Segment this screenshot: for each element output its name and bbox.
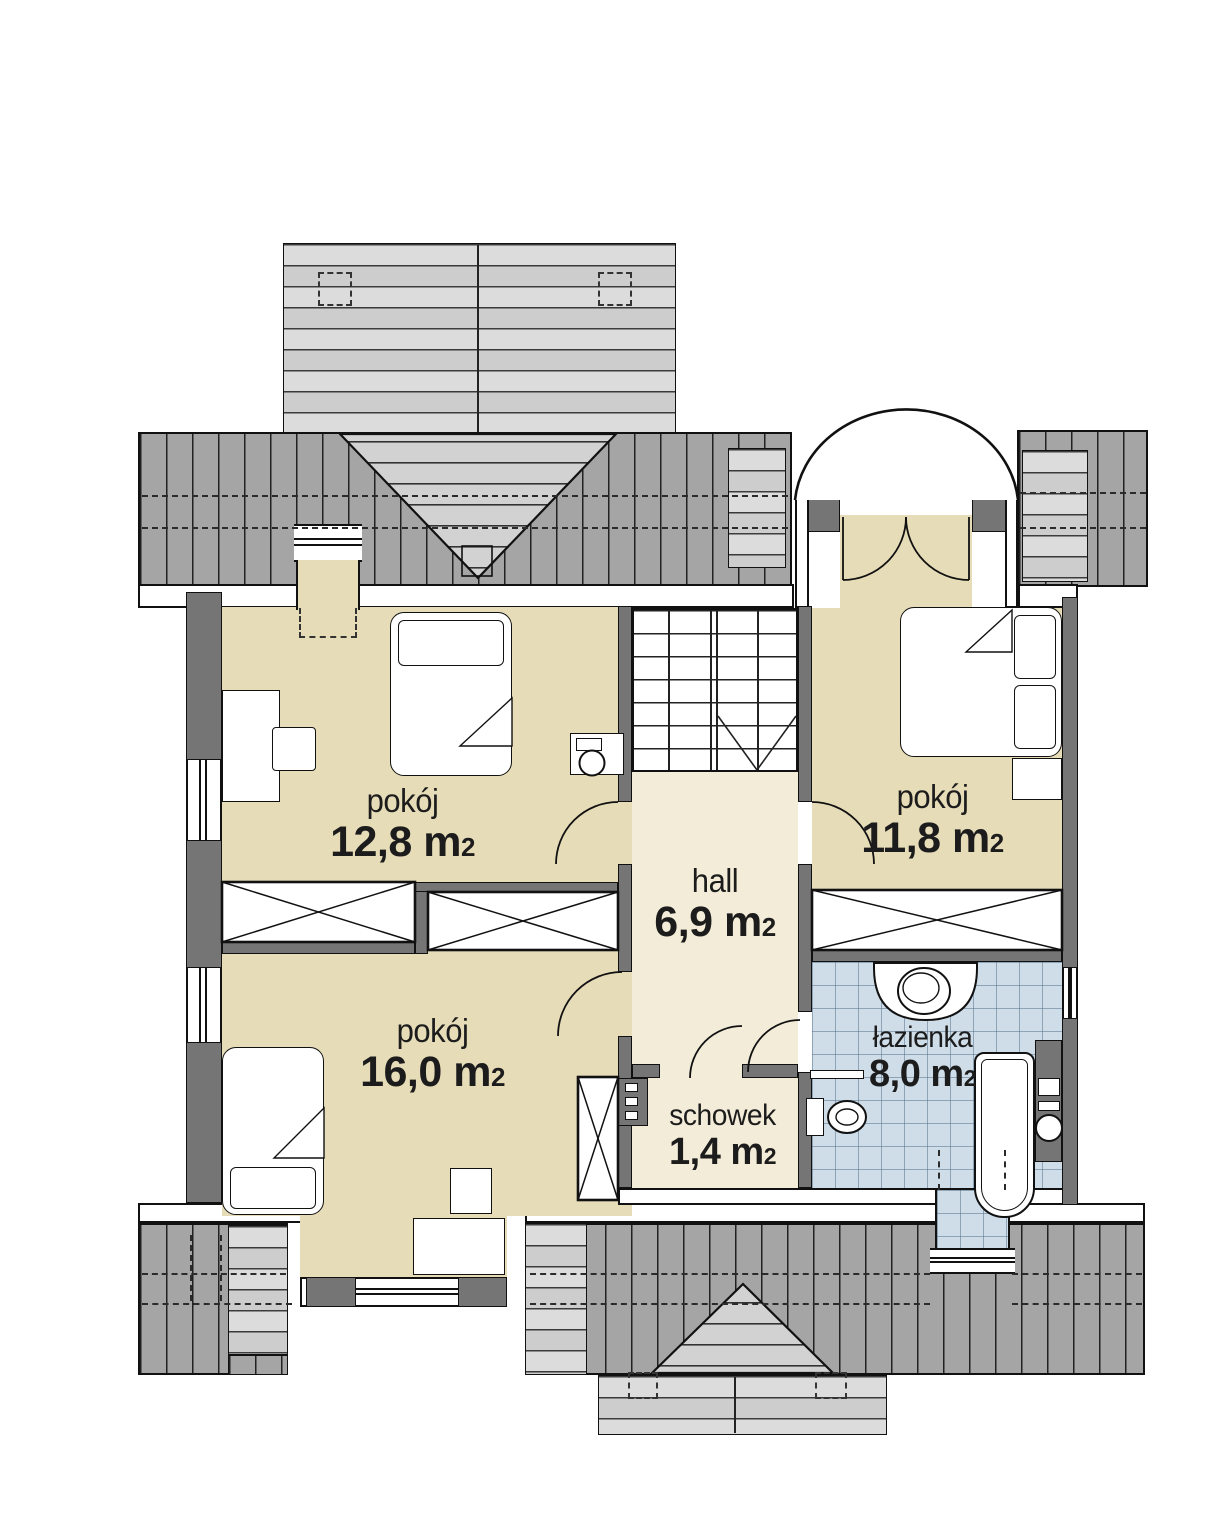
room-12-name: pokój <box>297 784 509 819</box>
label-room-12: pokój 12,8 m2 <box>290 784 515 865</box>
window-room-16 <box>186 968 222 1042</box>
bath-bay-dash-left <box>938 1150 940 1190</box>
wall-balcony-jamb-left <box>808 498 840 532</box>
window-bathroom <box>1062 968 1078 1018</box>
roof-bay-window <box>294 524 362 562</box>
roof-dash-bottom-right-1a <box>530 1273 930 1275</box>
balcony-knee-left <box>795 498 809 608</box>
wall-partition-12-16-step <box>415 882 428 954</box>
wall-partition-12-16-left <box>222 942 415 954</box>
wall-right-lower <box>1062 1018 1078 1205</box>
room-11-name: pokój <box>827 780 1039 815</box>
room-12-bay-dash <box>299 608 357 638</box>
pillow-room-11-top <box>1014 615 1056 679</box>
wall-right-upper <box>1062 597 1078 968</box>
label-schowek: schowek 1,4 m2 <box>640 1100 805 1173</box>
schowek-panel-cell-1 <box>625 1083 638 1092</box>
upper-roof-slope <box>138 432 792 590</box>
stair-stringer-3 <box>716 610 718 770</box>
roof-dash-bottom-left-v1 <box>190 1235 192 1301</box>
wall-balcony-jamb-right <box>972 498 1006 532</box>
balcony-knee-right <box>1005 498 1018 608</box>
window-room-12 <box>186 760 222 840</box>
pillow-room-11-bottom <box>1014 685 1056 749</box>
upper-roof-right-patch <box>728 448 786 568</box>
wall-hall-schowek-left <box>632 1064 660 1078</box>
wall-bottom-16-block-left <box>306 1277 356 1307</box>
eave-top <box>138 584 794 608</box>
room-16-name: pokój <box>327 1014 539 1049</box>
hall-area: 6,9 m2 <box>630 899 800 945</box>
wall-hall-schowek-right <box>742 1064 798 1078</box>
pillow-room-12 <box>398 620 504 666</box>
label-room-16: pokój 16,0 m2 <box>320 1014 545 1095</box>
chimney-marker-right <box>598 272 632 306</box>
roof-dash-top-right-2 <box>1020 527 1146 529</box>
room-11-balcony-bay-floor <box>840 515 972 610</box>
bottom-dormer-ridge-line <box>734 1377 736 1433</box>
wall-left-middle <box>186 840 222 968</box>
room-16-area: 16,0 m2 <box>320 1049 545 1095</box>
bottom-left-roof-strip <box>228 1355 288 1375</box>
lazienka-name: łazienka <box>836 1022 1010 1054</box>
roof-dash-bottom-right-2b <box>1012 1303 1142 1305</box>
bath-bay-window <box>930 1248 1015 1274</box>
roof-dash-top-2 <box>142 527 788 529</box>
schowek-panel-cell-2 <box>625 1097 638 1106</box>
roof-dash-bottom-left-2 <box>142 1303 292 1305</box>
wall-hall-east-b <box>798 864 812 1012</box>
schowek-name: schowek <box>645 1100 800 1132</box>
wall-hall-east-a <box>798 606 812 802</box>
bath-heater-shelf <box>1038 1101 1060 1111</box>
lazienka-area: 8,0 m2 <box>830 1054 1015 1095</box>
stair-stringer-4 <box>757 610 759 770</box>
hall-name: hall <box>635 864 795 899</box>
label-hall: hall 6,9 m2 <box>630 864 800 945</box>
wall-left-upper <box>186 592 222 760</box>
pillow-room-16 <box>230 1167 316 1209</box>
bottom-roof-slope <box>525 1223 1145 1375</box>
label-lazienka: łazienka 8,0 m2 <box>830 1022 1015 1095</box>
schowek-area: 1,4 m2 <box>640 1132 805 1173</box>
window-room-16-south <box>356 1277 458 1307</box>
room-12-area: 12,8 m2 <box>290 819 515 865</box>
chair-room-12 <box>272 727 316 771</box>
flue-inner-box <box>576 738 602 751</box>
schowek-panel-cell-3 <box>625 1111 638 1120</box>
chimney-marker-left <box>318 272 352 306</box>
bath-bay-dash-right <box>1004 1150 1006 1190</box>
label-room-11: pokój 11,8 m2 <box>820 780 1045 861</box>
roof-dash-bottom-left-v2 <box>220 1235 222 1301</box>
roof-dash-bottom-right-1b <box>1012 1273 1142 1275</box>
wall-partition-11-bath <box>812 950 1062 962</box>
room-11-area: 11,8 m2 <box>820 815 1045 861</box>
top-right-roof-inner <box>1022 450 1088 582</box>
toilet-tank <box>806 1098 824 1136</box>
staircase <box>632 608 798 772</box>
chimney-marker-bottom-left <box>628 1372 658 1399</box>
desk-room-16 <box>413 1218 505 1275</box>
bottom-roof-left-column <box>525 1223 587 1375</box>
roof-dash-bottom-right-2a <box>530 1303 930 1305</box>
stair-stringer-2 <box>710 610 712 770</box>
wall-bottom-16-block-right <box>458 1277 507 1307</box>
chimney-marker-bottom-right <box>815 1372 847 1399</box>
bath-heater-box <box>1038 1078 1060 1096</box>
wall-left-lower <box>186 1042 222 1203</box>
stair-stringer-1 <box>668 610 670 770</box>
roof-bay-floor <box>296 560 360 610</box>
bottom-left-roof-inner <box>228 1225 288 1355</box>
wall-partition-12-16-right <box>415 882 618 892</box>
stool-room-16 <box>450 1168 492 1214</box>
roof-dash-top-1 <box>142 495 788 497</box>
roof-dash-top-right-1 <box>1020 492 1146 494</box>
top-dormer-ridge-line <box>477 245 479 432</box>
balcony-arch <box>795 409 1018 500</box>
roof-dash-bottom-left-1 <box>142 1273 286 1275</box>
floor-plan-canvas: pokój 12,8 m2 pokój 11,8 m2 hall 6,9 m2 … <box>0 0 1211 1527</box>
